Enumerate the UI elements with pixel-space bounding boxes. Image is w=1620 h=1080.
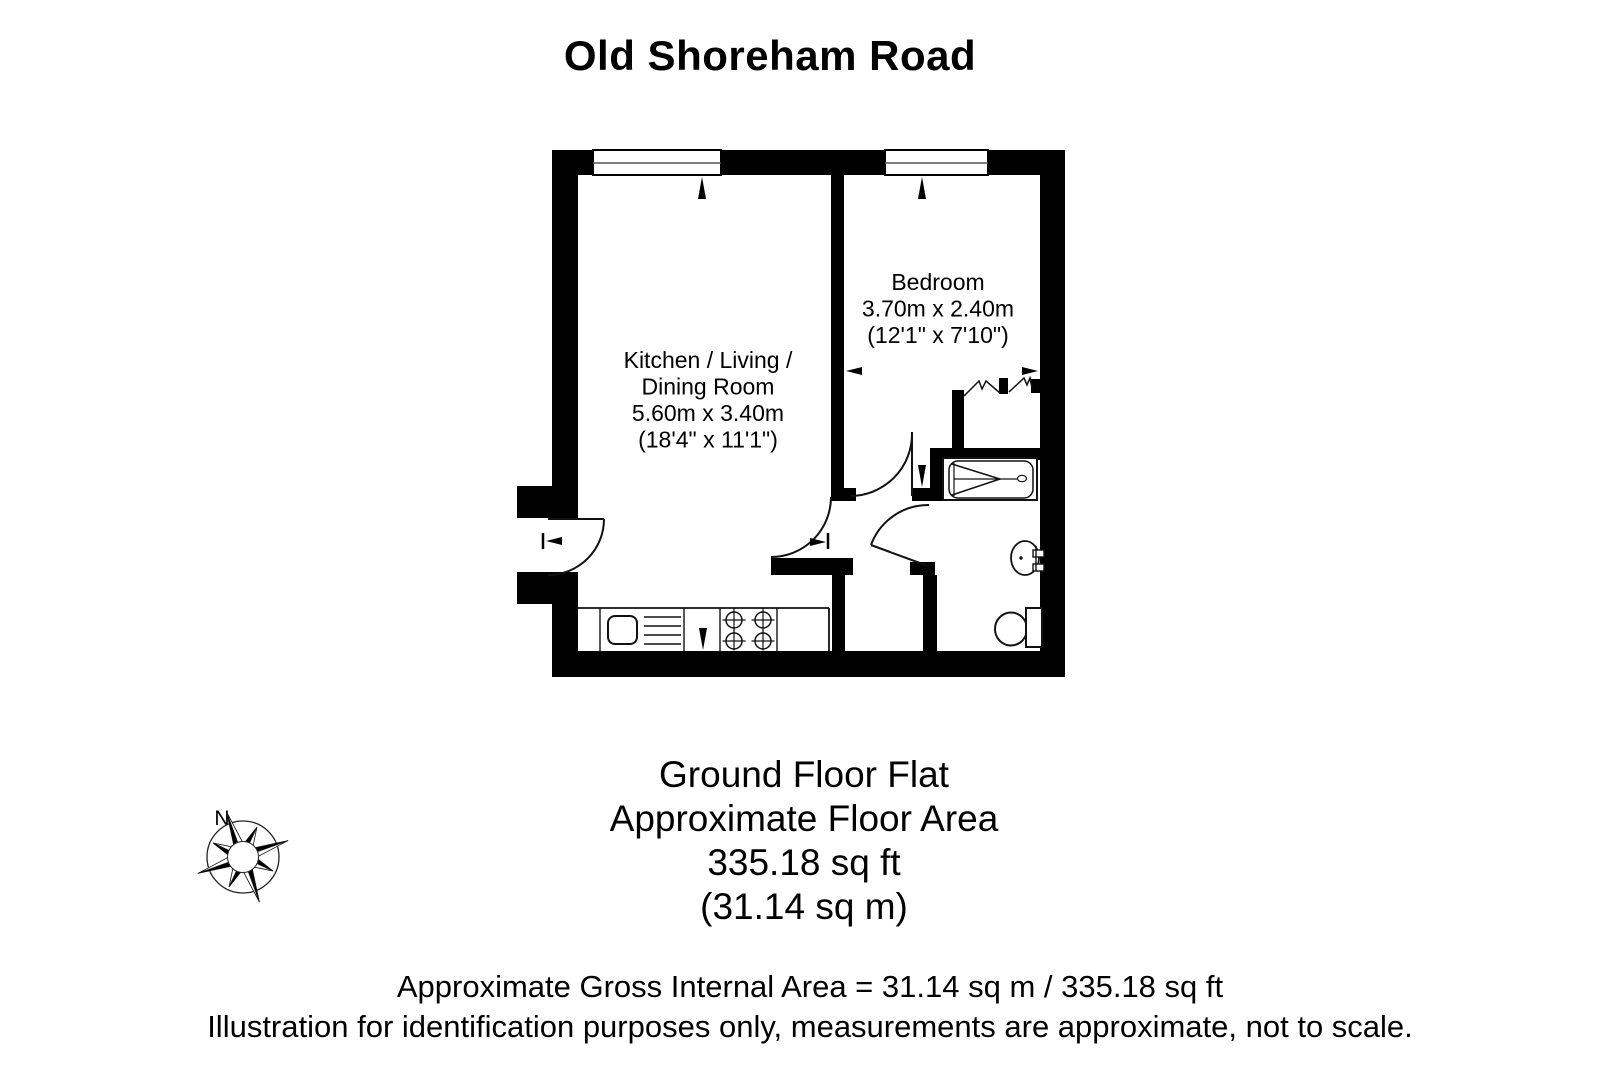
living-room-door bbox=[771, 497, 831, 557]
arrow-living-left-icon bbox=[543, 533, 562, 549]
arrow-bedroom-down-icon bbox=[918, 465, 926, 487]
wall-left-pier-upper bbox=[517, 486, 578, 518]
gross-internal-area-line: Approximate Gross Internal Area = 31.14 … bbox=[10, 967, 1610, 1007]
wall-kitchen-nib bbox=[771, 558, 853, 575]
summary-area-title: Approximate Floor Area bbox=[304, 797, 1304, 841]
arrow-bedroom-right-icon bbox=[1022, 367, 1038, 375]
wall-left-pier-lower bbox=[517, 572, 578, 604]
bedroom-dimensions-imperial: (12'1" x 7'10") bbox=[867, 322, 1008, 348]
floorplan-drawing: Kitchen / Living / Dining Room 5.60m x 3… bbox=[500, 140, 1080, 685]
wall-wardrobe-stub-a bbox=[999, 378, 1008, 394]
wall-divider bbox=[831, 175, 844, 488]
bathroom-fixtures bbox=[943, 458, 1044, 647]
floorplan-page: Old Shoreham Road bbox=[0, 0, 1620, 1080]
exterior-walls bbox=[517, 150, 1065, 677]
toilet-icon bbox=[995, 608, 1042, 647]
identification-disclaimer-line: Illustration for identification purposes… bbox=[10, 1007, 1610, 1047]
wall-left-lower bbox=[552, 604, 578, 651]
bathroom-door bbox=[871, 505, 929, 566]
window-bedroom bbox=[885, 150, 988, 175]
arrow-bedroom-left-icon bbox=[846, 367, 862, 375]
compass-rose-icon: N bbox=[180, 795, 310, 920]
room-label-bedroom: Bedroom 3.70m x 2.40m (12'1" x 7'10") bbox=[862, 269, 1014, 348]
bathtub-icon bbox=[943, 458, 1037, 500]
wall-left-upper bbox=[552, 150, 578, 486]
summary-area-sqft: 335.18 sq ft bbox=[304, 841, 1304, 885]
compass-north-label: N bbox=[214, 807, 229, 830]
basin-icon bbox=[1011, 541, 1044, 575]
entry-door bbox=[548, 519, 604, 575]
arrow-bedroom-up-icon bbox=[918, 177, 926, 199]
living-label-line2: Dining Room bbox=[642, 374, 775, 400]
window-living bbox=[593, 150, 721, 175]
summary-floor-name: Ground Floor Flat bbox=[304, 753, 1304, 797]
kitchen-sink-icon bbox=[608, 616, 681, 644]
wall-bottom bbox=[552, 651, 1065, 677]
page-title: Old Shoreham Road bbox=[270, 32, 1270, 80]
interior-walls bbox=[771, 175, 1065, 651]
floor-area-summary: Ground Floor Flat Approximate Floor Area… bbox=[304, 753, 1304, 929]
living-dimensions-imperial: (18'4" x 11'1") bbox=[638, 427, 778, 453]
wall-bedroom-door-left-stub bbox=[831, 488, 856, 501]
wall-divider-lower bbox=[832, 575, 845, 651]
arrow-living-right-icon bbox=[810, 533, 828, 549]
living-label-line1: Kitchen / Living / bbox=[624, 347, 793, 373]
arrow-living-up-icon bbox=[698, 177, 706, 199]
bedroom-dimensions-metric: 3.70m x 2.40m bbox=[862, 296, 1014, 322]
living-dimensions-metric: 5.60m x 3.40m bbox=[632, 400, 784, 426]
wardrobe-bifold-doors bbox=[964, 378, 1032, 396]
arrow-living-down-icon bbox=[699, 628, 707, 650]
summary-area-sqm: (31.14 sq m) bbox=[304, 885, 1304, 929]
bedroom-door bbox=[850, 432, 912, 496]
hob-icon bbox=[723, 609, 775, 651]
wall-right bbox=[1040, 150, 1065, 677]
wall-wardrobe-left bbox=[952, 390, 964, 448]
bedroom-label: Bedroom bbox=[891, 269, 984, 295]
room-label-living: Kitchen / Living / Dining Room 5.60m x 3… bbox=[624, 347, 793, 453]
disclaimer: Approximate Gross Internal Area = 31.14 … bbox=[10, 967, 1610, 1047]
wall-closet-right bbox=[923, 575, 937, 651]
